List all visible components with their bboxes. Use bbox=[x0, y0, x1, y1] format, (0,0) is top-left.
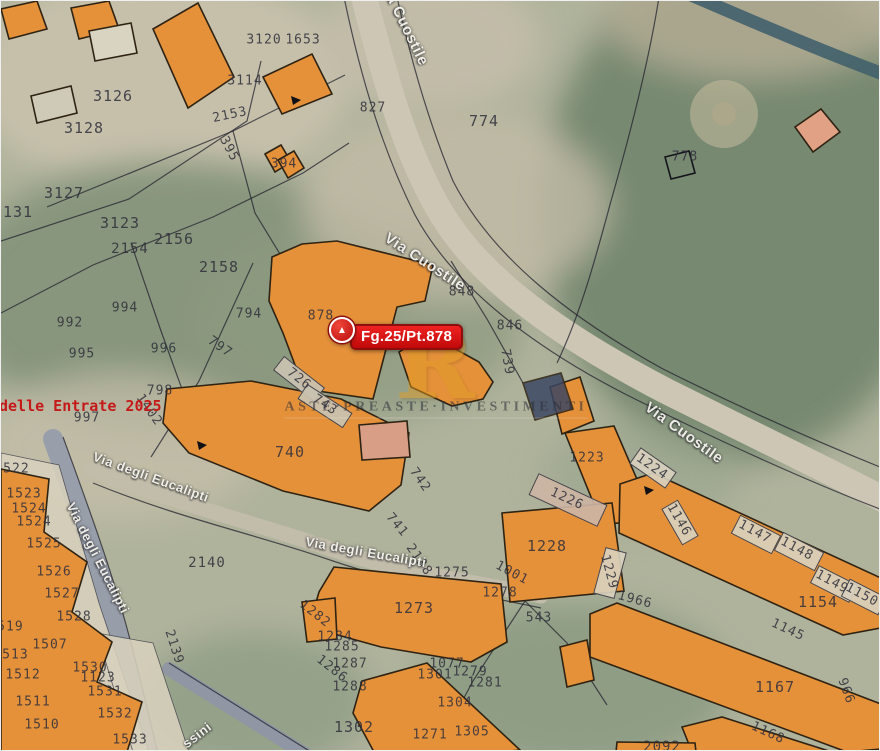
marker-label: Fg.25/Pt.878 bbox=[350, 324, 463, 350]
red-overlay-text: delle Entrate 2025 bbox=[0, 397, 162, 415]
marker-pin-icon[interactable]: ▲ bbox=[329, 317, 355, 343]
watermark: R ASTE·PREASTE·INVESTIMENTI bbox=[1, 1, 880, 751]
cadastral-map-view[interactable]: 3120165331148277747783126312831273131312… bbox=[0, 0, 880, 751]
location-marker[interactable]: ▲ Fg.25/Pt.878 bbox=[329, 315, 463, 350]
watermark-text: ASTE·PREASTE·INVESTIMENTI bbox=[284, 400, 587, 419]
